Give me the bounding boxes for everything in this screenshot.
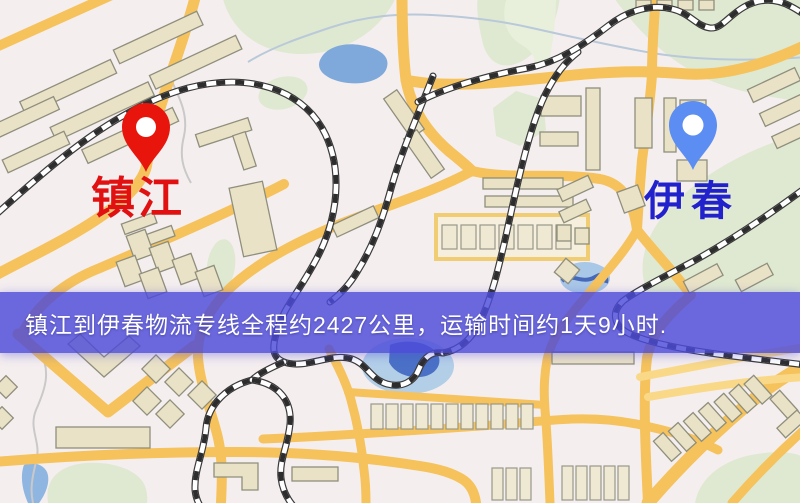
- route-info-banner: 镇江到伊春物流专线全程约2427公里，运输时间约1天9小时.: [0, 292, 800, 353]
- destination-city-label: 伊春: [644, 181, 738, 222]
- route-map: 镇江 伊春 镇江到伊春物流专线全程约2427公里，运输时间约1天9小时.: [0, 0, 800, 503]
- origin-city-label: 镇江: [91, 177, 185, 221]
- map-canvas[interactable]: [0, 0, 800, 503]
- route-info-text: 镇江到伊春物流专线全程约2427公里，运输时间约1天9小时.: [0, 306, 667, 340]
